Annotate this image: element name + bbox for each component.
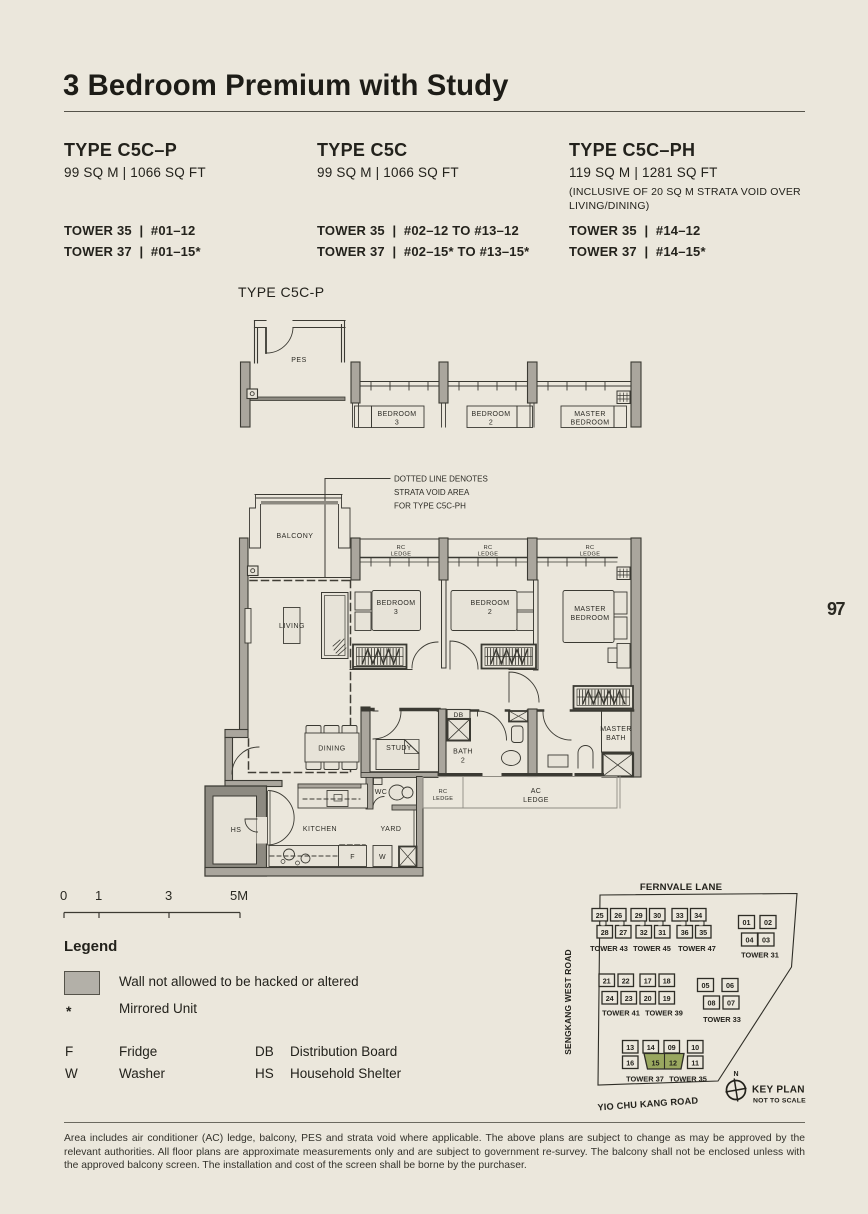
svg-text:36: 36 <box>681 928 689 937</box>
svg-text:NOT TO SCALE: NOT TO SCALE <box>753 1098 806 1105</box>
svg-text:13: 13 <box>626 1043 634 1052</box>
svg-text:5M: 5M <box>230 888 248 903</box>
svg-text:KITCHEN: KITCHEN <box>303 826 337 833</box>
svg-text:11: 11 <box>691 1059 699 1068</box>
svg-text:LEDGE: LEDGE <box>478 552 498 558</box>
svg-text:03: 03 <box>762 936 770 945</box>
svg-text:F: F <box>350 854 355 861</box>
svg-text:07: 07 <box>727 999 735 1008</box>
svg-text:30: 30 <box>653 911 661 920</box>
svg-text:MASTER: MASTER <box>574 606 606 613</box>
svg-text:STUDY: STUDY <box>386 745 412 752</box>
svg-text:3: 3 <box>165 888 172 903</box>
svg-text:08: 08 <box>708 999 716 1008</box>
svg-text:TOWER 37: TOWER 37 <box>626 1075 664 1084</box>
svg-text:25: 25 <box>596 911 604 920</box>
svg-text:TOWER 39: TOWER 39 <box>645 1009 683 1018</box>
svg-text:27: 27 <box>619 928 627 937</box>
svg-text:DOTTED LINE DENOTES: DOTTED LINE DENOTES <box>394 475 488 484</box>
svg-text:N: N <box>733 1071 738 1078</box>
svg-text:09: 09 <box>668 1043 676 1052</box>
svg-text:18: 18 <box>663 977 671 986</box>
svg-text:24: 24 <box>606 994 614 1003</box>
svg-text:TOWER 43: TOWER 43 <box>590 944 628 953</box>
svg-text:3: 3 <box>395 420 399 427</box>
svg-text:2: 2 <box>461 758 465 765</box>
svg-text:02: 02 <box>764 918 772 927</box>
svg-text:LEDGE: LEDGE <box>580 552 600 558</box>
svg-text:YIO CHU KANG ROAD: YIO CHU KANG ROAD <box>597 1095 699 1112</box>
svg-text:LEDGE: LEDGE <box>433 796 453 802</box>
svg-text:W: W <box>379 854 386 861</box>
svg-text:SENGKANG WEST ROAD: SENGKANG WEST ROAD <box>563 949 573 1055</box>
svg-text:BEDROOM: BEDROOM <box>471 600 510 607</box>
svg-text:35: 35 <box>699 928 707 937</box>
svg-text:BEDROOM: BEDROOM <box>571 420 610 427</box>
svg-text:MASTER: MASTER <box>600 726 632 733</box>
svg-text:15: 15 <box>652 1059 660 1068</box>
svg-text:RC: RC <box>484 545 493 551</box>
svg-text:19: 19 <box>663 994 671 1003</box>
svg-text:BATH: BATH <box>453 749 473 756</box>
svg-text:BEDROOM: BEDROOM <box>378 411 417 418</box>
svg-text:29: 29 <box>635 911 643 920</box>
svg-text:LEDGE: LEDGE <box>391 552 411 558</box>
svg-text:MASTER: MASTER <box>574 411 606 418</box>
svg-text:HS: HS <box>231 827 242 834</box>
svg-text:YARD: YARD <box>381 826 402 833</box>
svg-text:FOR TYPE C5C-PH: FOR TYPE C5C-PH <box>394 502 466 511</box>
svg-text:BEDROOM: BEDROOM <box>571 615 610 622</box>
svg-text:LEDGE: LEDGE <box>523 797 549 804</box>
svg-text:TOWER 33: TOWER 33 <box>703 1015 741 1024</box>
svg-text:23: 23 <box>625 994 633 1003</box>
svg-text:TOWER 45: TOWER 45 <box>633 944 671 953</box>
svg-text:12: 12 <box>669 1059 677 1068</box>
svg-text:KEY PLAN: KEY PLAN <box>752 1085 805 1096</box>
svg-text:RC: RC <box>397 545 406 551</box>
svg-text:RC: RC <box>439 789 448 795</box>
svg-text:LIVING: LIVING <box>279 623 305 630</box>
svg-text:1: 1 <box>95 888 102 903</box>
svg-text:BATH: BATH <box>606 735 626 742</box>
svg-text:3: 3 <box>394 609 398 616</box>
svg-text:2: 2 <box>488 609 492 616</box>
svg-text:TOWER 35: TOWER 35 <box>669 1075 707 1084</box>
svg-text:BEDROOM: BEDROOM <box>377 600 416 607</box>
svg-text:10: 10 <box>691 1043 699 1052</box>
svg-text:33: 33 <box>676 911 684 920</box>
svg-text:06: 06 <box>726 981 734 990</box>
svg-text:BEDROOM: BEDROOM <box>472 411 511 418</box>
svg-text:TOWER 41: TOWER 41 <box>602 1009 640 1018</box>
svg-text:20: 20 <box>644 994 652 1003</box>
svg-text:STRATA VOID AREA: STRATA VOID AREA <box>394 488 470 497</box>
svg-text:14: 14 <box>647 1043 655 1052</box>
svg-text:DB: DB <box>453 712 463 719</box>
svg-text:AC: AC <box>531 788 542 795</box>
svg-text:17: 17 <box>644 977 652 986</box>
svg-text:BALCONY: BALCONY <box>277 533 314 540</box>
svg-text:DINING: DINING <box>318 746 346 753</box>
svg-text:22: 22 <box>622 977 630 986</box>
svg-text:28: 28 <box>601 928 609 937</box>
svg-text:32: 32 <box>640 928 648 937</box>
svg-text:21: 21 <box>603 977 611 986</box>
svg-text:0: 0 <box>60 888 67 903</box>
svg-text:2: 2 <box>489 420 493 427</box>
svg-text:TOWER 31: TOWER 31 <box>741 951 779 960</box>
svg-text:PES: PES <box>291 357 307 364</box>
svg-text:RC: RC <box>586 545 595 551</box>
svg-text:01: 01 <box>743 918 751 927</box>
svg-text:34: 34 <box>694 911 702 920</box>
svg-text:FERNVALE LANE: FERNVALE LANE <box>640 882 723 893</box>
svg-text:05: 05 <box>702 981 710 990</box>
svg-text:TOWER 47: TOWER 47 <box>678 944 716 953</box>
svg-text:26: 26 <box>614 911 622 920</box>
svg-text:WC: WC <box>375 789 387 796</box>
svg-text:04: 04 <box>746 936 754 945</box>
svg-text:16: 16 <box>626 1059 634 1068</box>
svg-text:31: 31 <box>658 928 666 937</box>
